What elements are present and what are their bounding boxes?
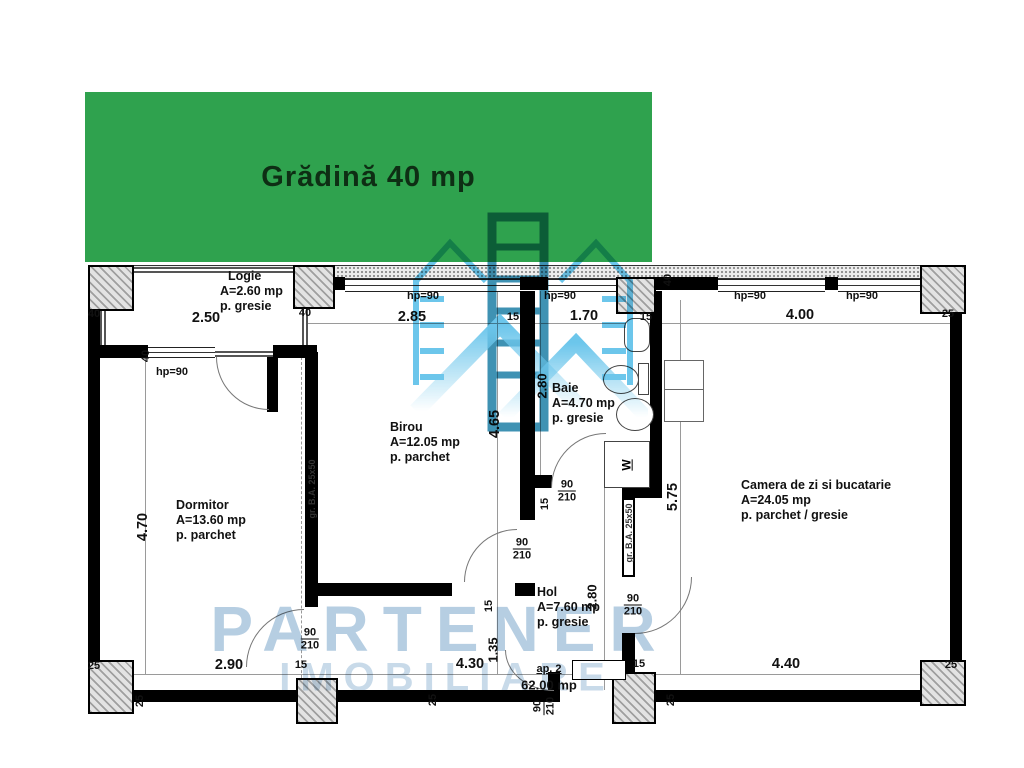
room-floor: p. parchet	[176, 528, 246, 543]
wall-baie-bottom	[535, 475, 552, 488]
dim: 2.90	[215, 657, 243, 673]
room-label-logie: Logie A=2.60 mp p. gresie	[220, 269, 283, 314]
door-height: 210	[301, 639, 319, 652]
washing-machine-label: W	[620, 459, 634, 470]
room-area: A=12.05 mp	[390, 435, 460, 450]
door-width: 90	[516, 537, 528, 549]
door-arc-camera	[635, 577, 692, 634]
window-parapet-label: hp=90	[156, 366, 188, 378]
wall-right	[950, 265, 962, 702]
room-floor: p. parchet / gresie	[741, 508, 891, 523]
window-parapet-label: hp=90	[407, 290, 439, 302]
door-width: 90	[561, 479, 573, 491]
room-label-dormitor: Dormitor A=13.60 mp p. parchet	[176, 498, 246, 543]
dim: 25	[427, 694, 439, 706]
floor-plan: Grădină 40 mp	[0, 0, 1024, 768]
door-height: 210	[513, 549, 531, 562]
room-area: A=2.60 mp	[220, 284, 283, 299]
dim: 25	[942, 308, 954, 320]
column	[920, 660, 966, 706]
room-area: A=24.05 mp	[741, 493, 891, 508]
dim: 4.65	[487, 410, 503, 438]
column	[88, 265, 134, 311]
window-parapet-label: hp=90	[734, 290, 766, 302]
room-area: A=4.70 mp	[552, 396, 615, 411]
door-size-label: 90 210	[513, 537, 531, 562]
apartment-area: 62.00 mp	[521, 678, 577, 693]
beam-label: gr. B.A. 25x50	[624, 503, 634, 562]
room-name: Birou	[390, 420, 460, 435]
dim: 25	[665, 694, 677, 706]
window-parapet-label: hp=90	[544, 290, 576, 302]
dim: 5.75	[665, 483, 681, 511]
door-arc-birou	[464, 529, 517, 582]
door-size-label: 90 210	[558, 479, 576, 504]
door-height: 210	[544, 697, 557, 715]
apartment-label: ap. 2	[536, 663, 561, 675]
garden-area: Grădină 40 mp	[85, 92, 652, 262]
wall-birou-bottom	[317, 583, 452, 596]
room-name: Logie	[220, 269, 283, 284]
kitchen-unit-bottom	[664, 389, 704, 422]
door-arc-logia	[216, 357, 269, 410]
door-size-label: 90 210	[301, 627, 319, 652]
dim-line-birou	[497, 291, 498, 674]
wall-birou-right	[520, 291, 535, 520]
kitchen-unit-top	[664, 360, 704, 391]
dim: 25	[945, 659, 957, 671]
wall-birou-bottom	[515, 583, 535, 596]
dim: 2.80	[535, 373, 550, 398]
dim: 40	[88, 308, 100, 320]
room-area: A=13.60 mp	[176, 513, 246, 528]
door-size-label-entrance: 90 210	[532, 697, 557, 715]
column	[296, 678, 338, 724]
toilet-tank	[638, 363, 649, 395]
room-label-camera: Camera de zi si bucatarie A=24.05 mp p. …	[741, 478, 891, 523]
room-floor: p. parchet	[390, 450, 460, 465]
column	[616, 277, 656, 314]
wall-left	[88, 265, 100, 702]
dim: 1.70	[570, 308, 598, 324]
room-floor: p. gresie	[220, 299, 283, 314]
door-height: 210	[558, 491, 576, 504]
dim: 25	[88, 660, 100, 672]
dim: 4.00	[786, 307, 814, 323]
door-height: 210	[624, 605, 642, 618]
window-parapet-label: hp=90	[846, 290, 878, 302]
bidet	[624, 318, 650, 352]
room-name: Dormitor	[176, 498, 246, 513]
dim: 40	[299, 307, 311, 319]
door-width: 90	[304, 627, 316, 639]
column	[293, 265, 335, 309]
wall	[825, 277, 838, 290]
dim: 2.85	[398, 309, 426, 325]
dim: 15	[640, 311, 652, 323]
dim: 15	[507, 311, 519, 323]
window-dormitor	[148, 347, 215, 358]
dim: 4.40	[772, 656, 800, 672]
dim: 4.70	[135, 513, 151, 541]
garden-label: Grădină 40 mp	[261, 161, 475, 194]
dim: 25	[134, 695, 146, 707]
door-size-label: 90 210	[624, 593, 642, 618]
entrance-door-leaf	[572, 660, 626, 680]
dim: 15	[633, 658, 645, 670]
dim: 2.50	[192, 310, 220, 326]
dim: 15	[483, 600, 495, 612]
room-label-baie: Baie A=4.70 mp p. gresie	[552, 381, 615, 426]
wall-jog	[622, 487, 662, 498]
dim: 40	[140, 350, 152, 362]
room-name: Camera de zi si bucatarie	[741, 478, 891, 493]
door-width: 90	[532, 700, 544, 712]
wall-bottom-right	[650, 690, 962, 702]
dim: 1.35	[486, 637, 501, 662]
washing-machine: W	[604, 441, 650, 488]
wall	[520, 277, 548, 290]
dim: 4.30	[456, 656, 484, 672]
dim: 40	[662, 274, 674, 286]
dim: 2.80	[585, 584, 600, 609]
room-floor: p. gresie	[552, 411, 615, 426]
beam-label: gr. B.A. 25x50	[307, 459, 317, 518]
sink	[616, 398, 654, 431]
dim: 15	[539, 498, 551, 510]
room-name: Baie	[552, 381, 615, 396]
room-floor: p. gresie	[537, 615, 600, 630]
column	[920, 265, 966, 314]
room-label-birou: Birou A=12.05 mp p. parchet	[390, 420, 460, 465]
door-width: 90	[627, 593, 639, 605]
dim: 15	[295, 659, 307, 671]
